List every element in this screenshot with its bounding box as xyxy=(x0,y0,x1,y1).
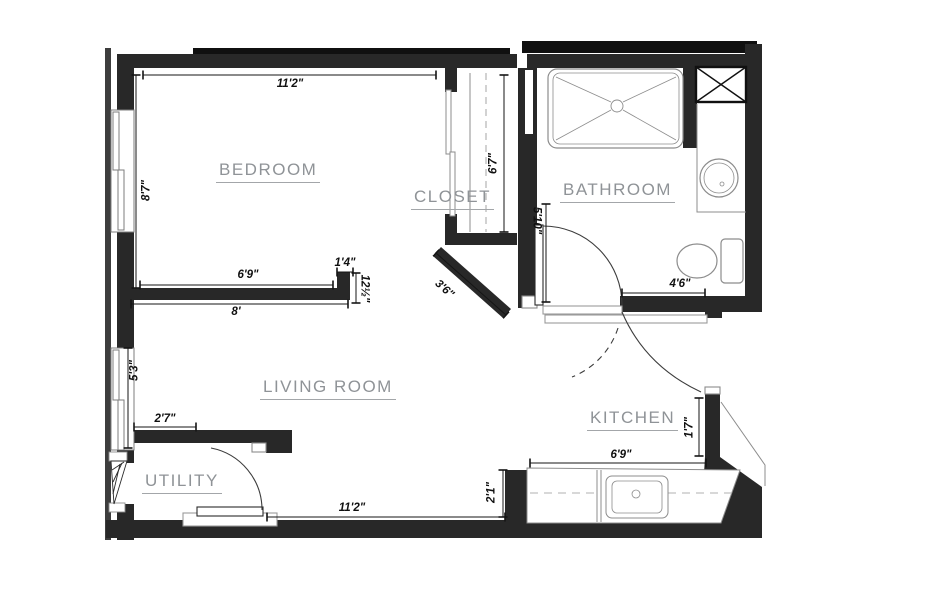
left-veneer-wall xyxy=(105,48,111,540)
kitchen-west-stub xyxy=(505,470,527,523)
door-swing-dashed-arc xyxy=(572,328,618,377)
bathroom-south-wall xyxy=(620,296,762,312)
floor-plan: BEDROOM CLOSET BATHROOM LIVING ROOM KITC… xyxy=(0,0,942,606)
bedroom-wall-stub xyxy=(337,272,350,300)
dim-bath-width: 4'6" xyxy=(660,278,700,291)
vanity-sink xyxy=(700,159,738,197)
dim-counter-side: 2'1" xyxy=(486,476,499,510)
wall-chase-slot xyxy=(525,70,533,134)
utility-label: UTILITY xyxy=(142,471,222,494)
bathroom-door-arc xyxy=(543,226,622,305)
dim-stub-width: 1'4" xyxy=(331,257,359,270)
kitchen-door-jamb xyxy=(705,387,720,394)
sliding-door-panel xyxy=(446,90,451,154)
bathroom-fixtures xyxy=(548,67,746,283)
dim-bedroom-inner: 6'9" xyxy=(228,269,268,282)
dim-bedroom-width: 11'2" xyxy=(266,78,314,91)
bathroom-label: BATHROOM xyxy=(560,180,675,203)
utility-door-leaf xyxy=(197,507,263,516)
dim-stub-height: 12½" xyxy=(358,272,371,306)
utility-chase xyxy=(696,67,746,102)
shower xyxy=(548,69,683,148)
kitchen-label: KITCHEN xyxy=(587,408,678,431)
toilet xyxy=(677,239,743,283)
dim-closet-depth: 6'7" xyxy=(488,147,501,181)
shower-drain xyxy=(611,100,623,112)
dim-bath-door-wall: 5'10" xyxy=(530,202,543,240)
dim-living-width: 11'2" xyxy=(330,502,374,515)
kitchen-door-arc xyxy=(622,312,701,392)
floor-plan-drawing xyxy=(0,0,942,606)
closet-divider-top-stub xyxy=(445,68,457,92)
living-room-label: LIVING ROOM xyxy=(260,377,396,400)
dim-utility-top: 2'7" xyxy=(145,413,185,426)
dim-kitchen-side: 1'7" xyxy=(684,411,697,445)
dim-living-window: 5'3" xyxy=(129,354,142,388)
closet-label: CLOSET xyxy=(411,187,494,210)
bedroom-window xyxy=(111,110,134,232)
bathroom-threshold xyxy=(543,306,622,314)
bedroom-label: BEDROOM xyxy=(216,160,320,183)
dim-counter-length: 6'9" xyxy=(601,449,641,462)
closet-south-wall xyxy=(445,233,517,245)
bedroom-south-wall xyxy=(125,288,350,300)
dim-below-bedroom: 8' xyxy=(218,306,254,319)
dim-bedroom-height: 8'7" xyxy=(141,174,154,208)
entry-door xyxy=(109,452,127,512)
vanity xyxy=(697,104,746,212)
